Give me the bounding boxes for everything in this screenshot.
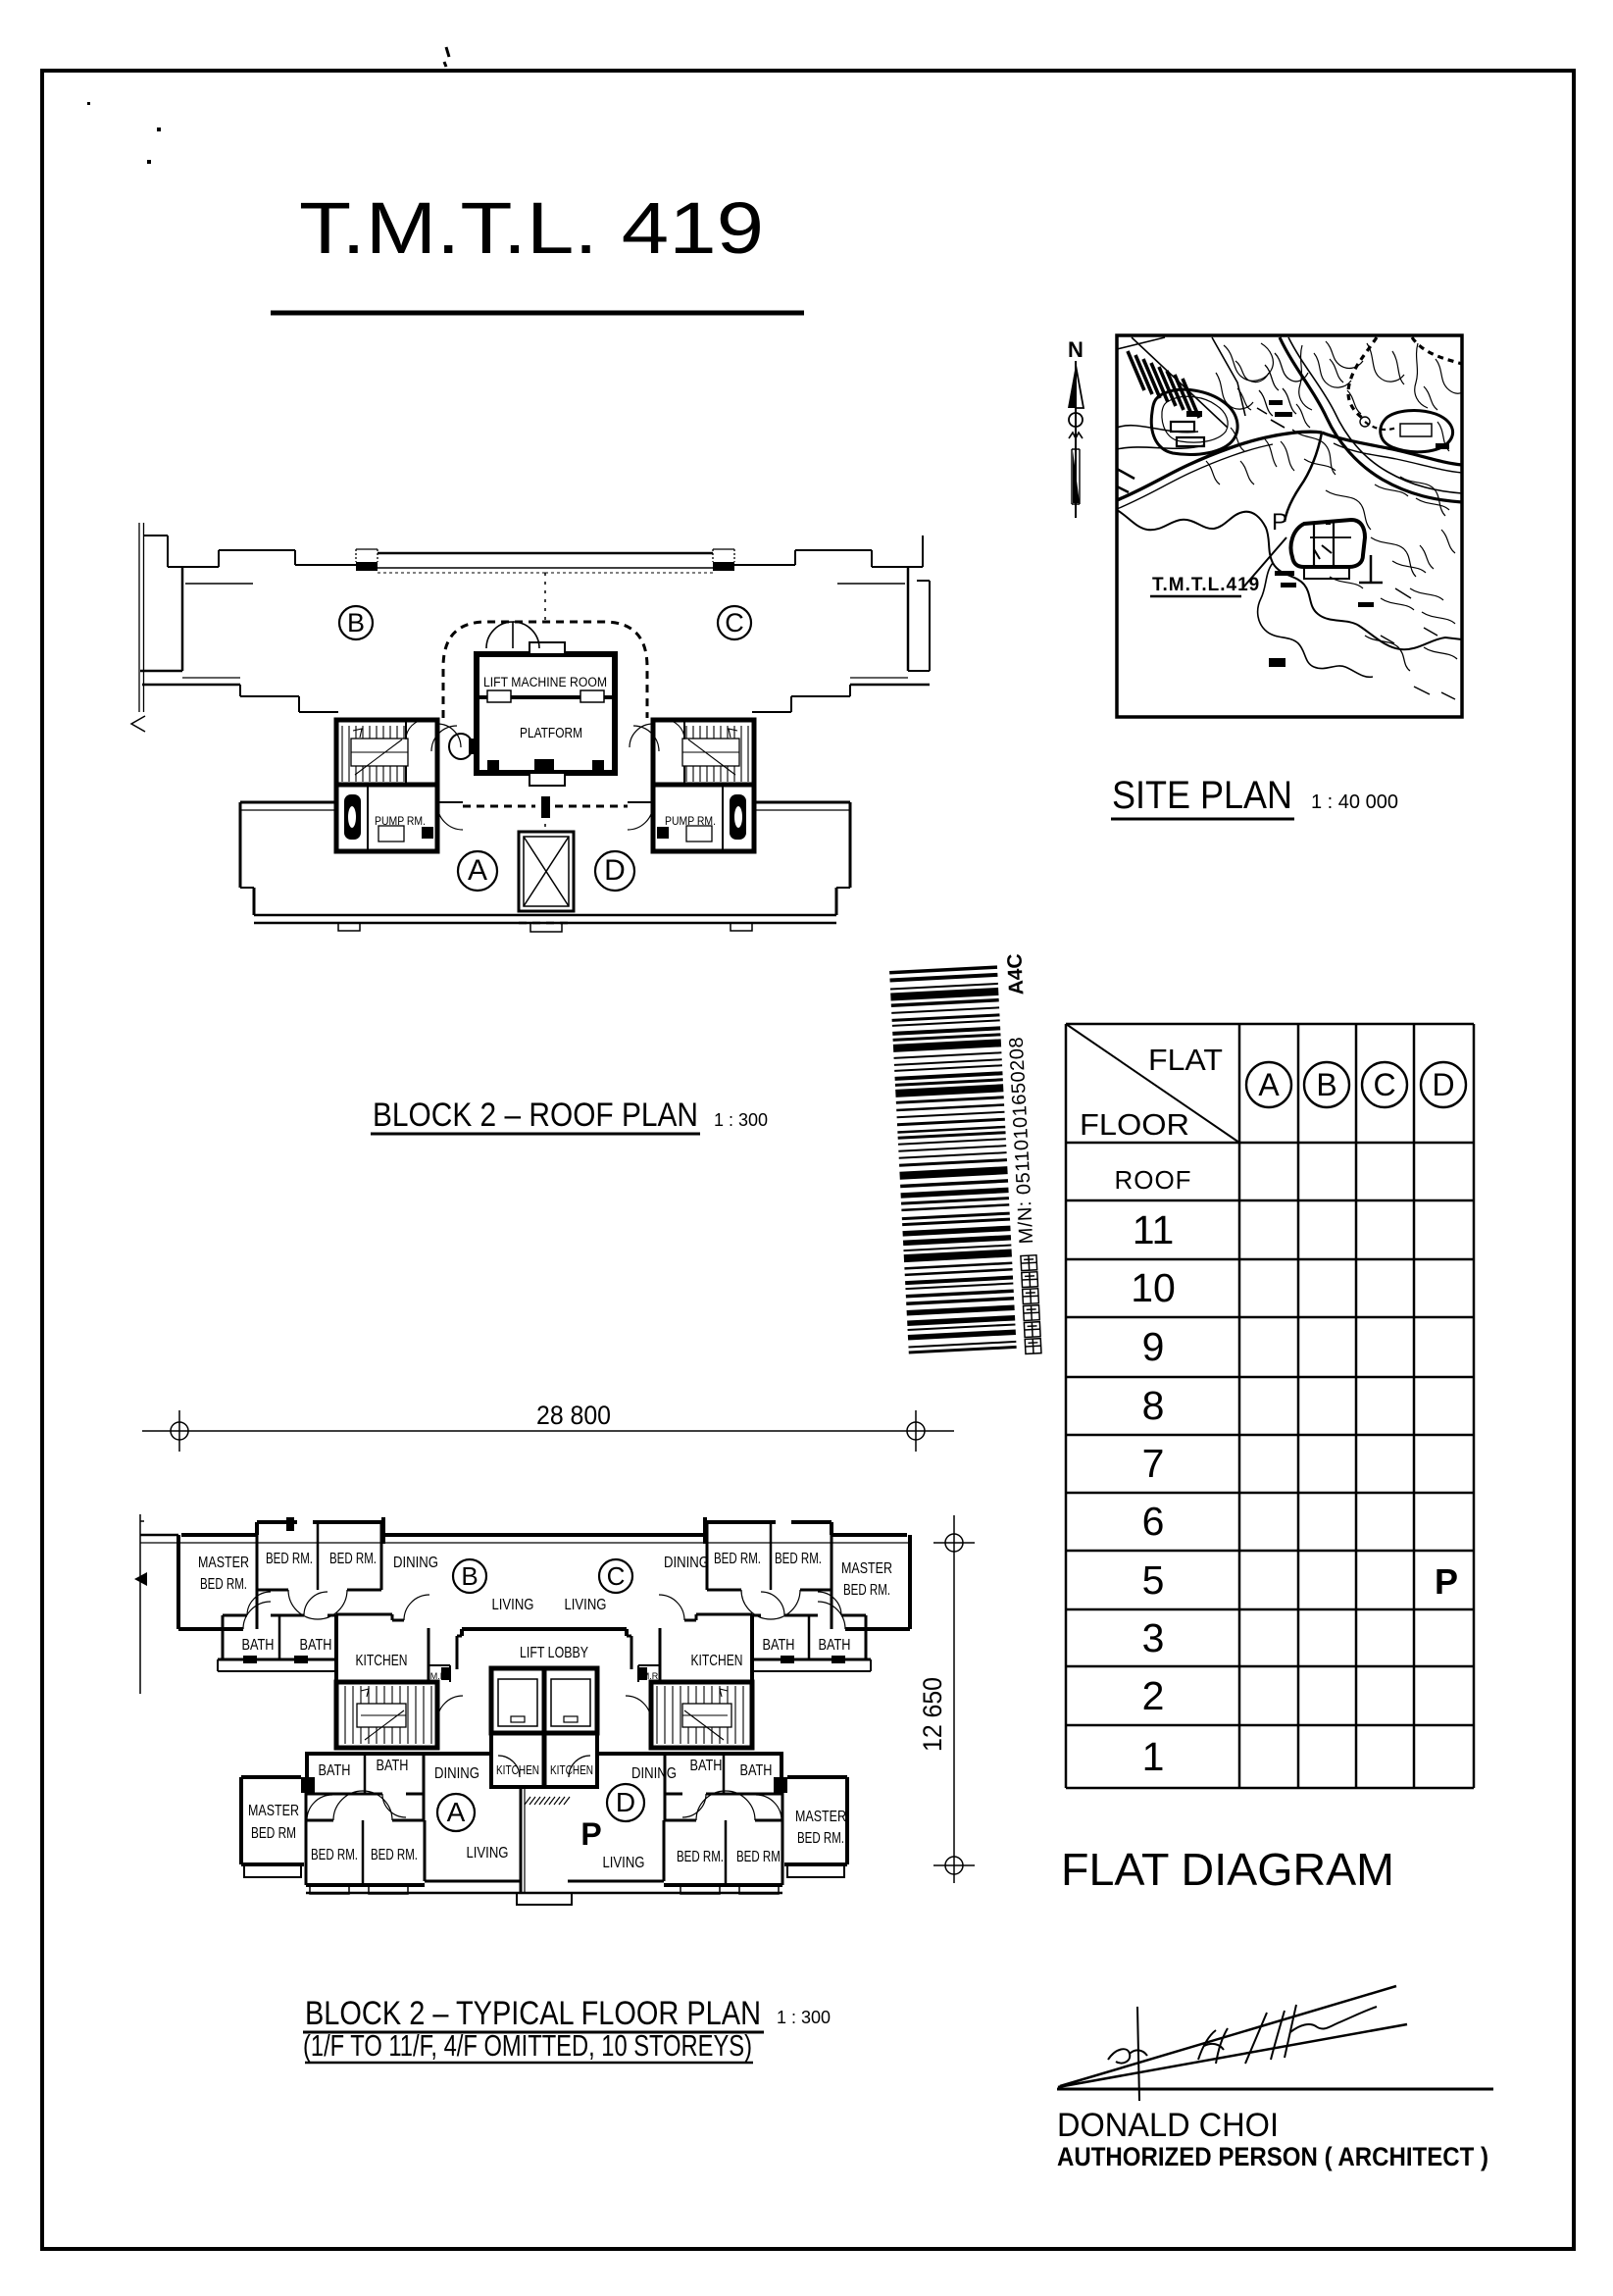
svg-text:ROOF: ROOF xyxy=(1114,1165,1191,1195)
svg-text:C: C xyxy=(1373,1067,1395,1102)
svg-text:KITCHEN: KITCHEN xyxy=(496,1763,539,1777)
svg-text:M/N: 05110101650208: M/N: 05110101650208 xyxy=(1006,1036,1038,1244)
svg-text:B: B xyxy=(1316,1067,1336,1102)
svg-text:D: D xyxy=(1432,1067,1454,1102)
svg-text:KITCHEN: KITCHEN xyxy=(691,1653,743,1669)
svg-text:PUMP RM.: PUMP RM. xyxy=(375,814,426,828)
svg-text:LIFT LOBBY: LIFT LOBBY xyxy=(520,1645,588,1661)
svg-text:DINING: DINING xyxy=(631,1765,677,1782)
svg-text:BATH: BATH xyxy=(819,1637,851,1654)
svg-text:DONALD CHOI: DONALD CHOI xyxy=(1057,2107,1279,2144)
svg-text:LIFT MACHINE ROOM: LIFT MACHINE ROOM xyxy=(483,675,607,689)
svg-text:AUTHORIZED PERSON ( ARCHITECT: AUTHORIZED PERSON ( ARCHITECT ) xyxy=(1057,2142,1488,2171)
svg-text:BED RM.: BED RM. xyxy=(200,1576,247,1593)
svg-text:SITE PLAN: SITE PLAN xyxy=(1112,774,1292,817)
svg-text:BED RM.: BED RM. xyxy=(775,1551,822,1567)
svg-text:P: P xyxy=(1435,1561,1458,1602)
svg-text:MASTER: MASTER xyxy=(198,1555,249,1571)
svg-text:BLOCK 2 – ROOF PLAN: BLOCK 2 – ROOF PLAN xyxy=(373,1097,698,1134)
svg-text:9: 9 xyxy=(1142,1324,1165,1369)
svg-text:BED RM.: BED RM. xyxy=(797,1830,844,1847)
svg-text:BED RM.: BED RM. xyxy=(329,1551,377,1567)
svg-text:1 : 300: 1 : 300 xyxy=(714,1110,768,1130)
svg-text:M.R: M.R xyxy=(430,1671,447,1681)
svg-text:A: A xyxy=(468,854,487,887)
svg-text:3: 3 xyxy=(1142,1615,1165,1660)
svg-text:M.R: M.R xyxy=(642,1671,659,1681)
svg-text:PLATFORM: PLATFORM xyxy=(520,725,582,741)
svg-text:BATH: BATH xyxy=(377,1758,409,1774)
svg-text:BATH: BATH xyxy=(319,1762,351,1779)
svg-text:7: 7 xyxy=(1142,1441,1165,1486)
svg-text:N: N xyxy=(1068,337,1084,362)
svg-text:BATH: BATH xyxy=(763,1637,795,1654)
svg-text:FLAT: FLAT xyxy=(1148,1043,1223,1077)
svg-text:BATH: BATH xyxy=(740,1762,773,1779)
svg-text:BED RM.: BED RM. xyxy=(736,1849,783,1865)
svg-text:KITCHEN: KITCHEN xyxy=(550,1763,593,1777)
svg-text:FLAT DIAGRAM: FLAT DIAGRAM xyxy=(1061,1844,1394,1895)
svg-text:A4C: A4C xyxy=(1003,953,1028,995)
svg-text:A: A xyxy=(447,1797,466,1827)
svg-text:2: 2 xyxy=(1142,1673,1165,1718)
svg-text:D: D xyxy=(616,1787,635,1817)
svg-text:BED RM: BED RM xyxy=(251,1825,296,1842)
svg-text:DINING: DINING xyxy=(664,1555,709,1571)
svg-text:D: D xyxy=(604,854,626,887)
svg-text:LIVING: LIVING xyxy=(492,1597,534,1613)
svg-text:BATH: BATH xyxy=(300,1637,332,1654)
svg-text:1: 1 xyxy=(1142,1734,1165,1779)
svg-text:KITCHEN: KITCHEN xyxy=(356,1653,408,1669)
svg-text:P: P xyxy=(580,1816,601,1852)
svg-text:MASTER: MASTER xyxy=(795,1809,846,1825)
svg-text:BED RM.: BED RM. xyxy=(677,1849,724,1865)
svg-text:C: C xyxy=(607,1561,626,1591)
svg-text:6: 6 xyxy=(1142,1499,1165,1544)
svg-text:BLOCK 2 – TYPICAL FLOOR PLAN: BLOCK 2 – TYPICAL FLOOR PLAN xyxy=(305,1995,761,2032)
svg-text:10: 10 xyxy=(1131,1265,1176,1310)
svg-text:BATH: BATH xyxy=(242,1637,275,1654)
svg-text:LIVING: LIVING xyxy=(565,1597,607,1613)
svg-text:LIVING: LIVING xyxy=(467,1845,509,1862)
svg-text:28 800: 28 800 xyxy=(536,1401,611,1430)
svg-text:BED RM.: BED RM. xyxy=(311,1847,358,1863)
svg-text:MASTER: MASTER xyxy=(841,1560,892,1577)
svg-text:PUMP RM.: PUMP RM. xyxy=(665,814,716,828)
svg-text:8: 8 xyxy=(1142,1383,1165,1428)
svg-text:FLOOR: FLOOR xyxy=(1080,1107,1189,1142)
svg-text:11: 11 xyxy=(1133,1207,1175,1252)
svg-text:P: P xyxy=(1272,509,1287,536)
svg-text:B: B xyxy=(461,1561,478,1591)
svg-text:BED RM.: BED RM. xyxy=(843,1582,890,1599)
svg-text:(1/F TO 11/F, 4/F OMITTED, 10: (1/F TO 11/F, 4/F OMITTED, 10 STOREYS) xyxy=(303,2028,752,2063)
svg-text:5: 5 xyxy=(1142,1557,1165,1603)
svg-text:DINING: DINING xyxy=(434,1765,479,1782)
svg-text:C: C xyxy=(725,608,744,638)
svg-text:BED RM.: BED RM. xyxy=(266,1551,313,1567)
svg-text:BATH: BATH xyxy=(690,1758,723,1774)
svg-text:1 : 40 000: 1 : 40 000 xyxy=(1311,791,1398,813)
svg-text:MASTER: MASTER xyxy=(248,1803,299,1819)
svg-text:BED RM.: BED RM. xyxy=(371,1847,418,1863)
svg-text:1 : 300: 1 : 300 xyxy=(777,2008,831,2027)
svg-text:A: A xyxy=(1258,1067,1280,1102)
svg-text:DINING: DINING xyxy=(393,1555,438,1571)
svg-text:B: B xyxy=(347,608,365,638)
svg-text:BED RM.: BED RM. xyxy=(714,1551,761,1567)
svg-text:T.M.T.L. 419: T.M.T.L. 419 xyxy=(299,187,764,269)
svg-text:12 650: 12 650 xyxy=(918,1677,947,1752)
svg-text:LIVING: LIVING xyxy=(603,1855,645,1871)
